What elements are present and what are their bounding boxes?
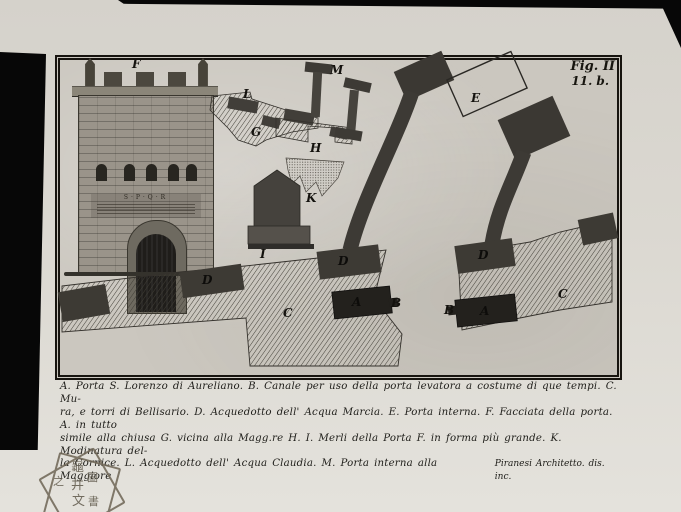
arched-window: [186, 164, 197, 181]
stamp-kanji: 文: [72, 496, 85, 508]
collector-stamp: 龜 之 圖 井 文 書: [28, 450, 138, 512]
stamp-kanji: 井: [71, 480, 84, 492]
merlon: [168, 72, 186, 86]
caption-line-2: ra, e torri di Bellisario. D. Acquedotto…: [60, 407, 620, 433]
label-I: I: [260, 248, 266, 260]
label-M: M: [330, 64, 343, 76]
arched-window: [124, 164, 135, 181]
stamp-kanji: 書: [88, 496, 99, 508]
photo-backing-left: [0, 52, 46, 450]
label-K: K: [306, 192, 316, 204]
caption-legend: A. Porta S. Lorenzo di Aureliano. B. Can…: [60, 381, 620, 484]
right-pinnacle: [196, 58, 210, 86]
fig-label-text: Fig. II: [545, 60, 615, 74]
inscription-text: S·P·Q·R: [91, 194, 201, 202]
label-B1: B: [391, 297, 401, 309]
merlon: [104, 72, 122, 86]
label-A2: A: [480, 305, 489, 317]
tower-masonry: S·P·Q·R: [78, 95, 214, 275]
merlon: [136, 72, 154, 86]
label-L: L: [243, 88, 251, 100]
arched-window: [168, 164, 179, 181]
label-D2: D: [338, 255, 348, 267]
left-pinnacle: [83, 58, 97, 86]
label-E: E: [471, 92, 480, 104]
label-F: F: [132, 58, 141, 70]
label-H: H: [310, 142, 321, 154]
arched-window: [146, 164, 157, 181]
artist-signature: Piranesi Architetto. dis. inc.: [495, 458, 620, 484]
inscription-tablet: S·P·Q·R: [91, 194, 201, 218]
label-B2: B: [444, 304, 454, 316]
etching-photograph: S·P·Q·R: [0, 0, 681, 512]
fig-number-text: 11. b.: [545, 74, 615, 88]
label-C1: C: [283, 307, 293, 319]
facade-elevation: S·P·Q·R: [70, 58, 220, 276]
inscription-lines: [97, 203, 195, 214]
label-C2: C: [558, 288, 568, 300]
label-D1: D: [202, 274, 212, 286]
label-A1: A: [352, 296, 361, 308]
caption-line-3: simile alla chiusa G. vicina alla Magg.r…: [60, 433, 620, 459]
label-D3: D: [478, 249, 488, 261]
stamp-kanji: 圖: [87, 472, 98, 484]
arch-doorway: [127, 220, 187, 314]
label-G: G: [251, 126, 261, 138]
stamp-kanji: 龜: [71, 462, 84, 474]
stamp-kanji: 之: [53, 476, 64, 488]
caption-line-1: A. Porta S. Lorenzo di Aureliano. B. Can…: [60, 381, 620, 407]
figure-number: Fig. II 11. b.: [545, 60, 615, 88]
arched-window: [96, 164, 107, 181]
photo-backing-top: [118, 0, 681, 10]
